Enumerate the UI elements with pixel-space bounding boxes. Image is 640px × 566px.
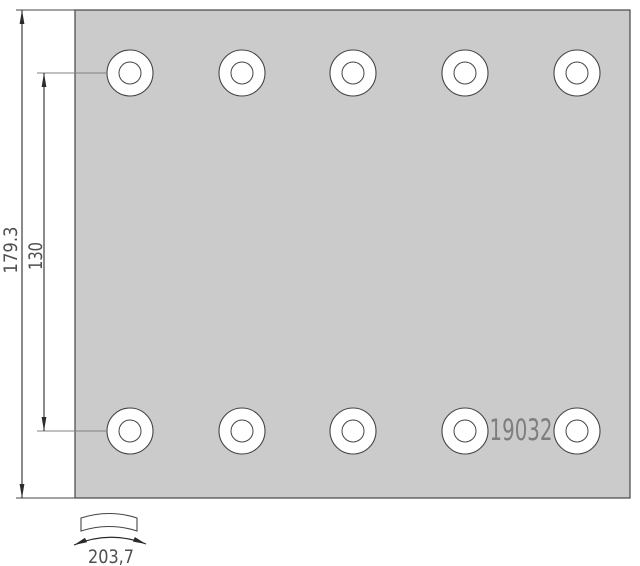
- rivet-hole: [554, 50, 600, 96]
- brake-lining-technical-drawing: 19032 179.3 130 203,7: [0, 0, 640, 566]
- hole-outer: [219, 50, 265, 96]
- arrow-left-icon: [74, 538, 87, 545]
- hole-outer: [442, 408, 488, 454]
- rivet-hole: [219, 408, 265, 454]
- rivet-hole: [107, 408, 153, 454]
- lining-cross-section: 203,7: [74, 514, 146, 566]
- arrow-up-icon: [42, 73, 47, 87]
- arrow-right-icon: [133, 537, 146, 544]
- rivet-hole: [219, 50, 265, 96]
- drawing-canvas: 19032 179.3 130 203,7: [0, 0, 640, 566]
- section-band-shape: [81, 514, 137, 532]
- rivet-hole: [330, 408, 376, 454]
- hole-outer: [219, 408, 265, 454]
- hole-outer: [442, 50, 488, 96]
- arc-width-label: 203,7: [88, 546, 134, 566]
- rivet-hole: [442, 50, 488, 96]
- part-number-label: 19032: [490, 413, 553, 447]
- hole-outer: [554, 50, 600, 96]
- hole-outer: [107, 50, 153, 96]
- arrow-down-icon: [42, 417, 47, 431]
- arrow-up-icon: [20, 10, 25, 24]
- arrow-down-icon: [20, 484, 25, 498]
- hole-outer: [330, 408, 376, 454]
- hole-outer: [330, 50, 376, 96]
- overall-height-label: 179.3: [0, 227, 22, 274]
- rivet-hole: [442, 408, 488, 454]
- rivet-hole: [330, 50, 376, 96]
- rivet-hole: [107, 50, 153, 96]
- hole-outer: [107, 408, 153, 454]
- rivet-spacing-label: 130: [25, 242, 47, 270]
- rivet-hole: [554, 408, 600, 454]
- hole-outer: [554, 408, 600, 454]
